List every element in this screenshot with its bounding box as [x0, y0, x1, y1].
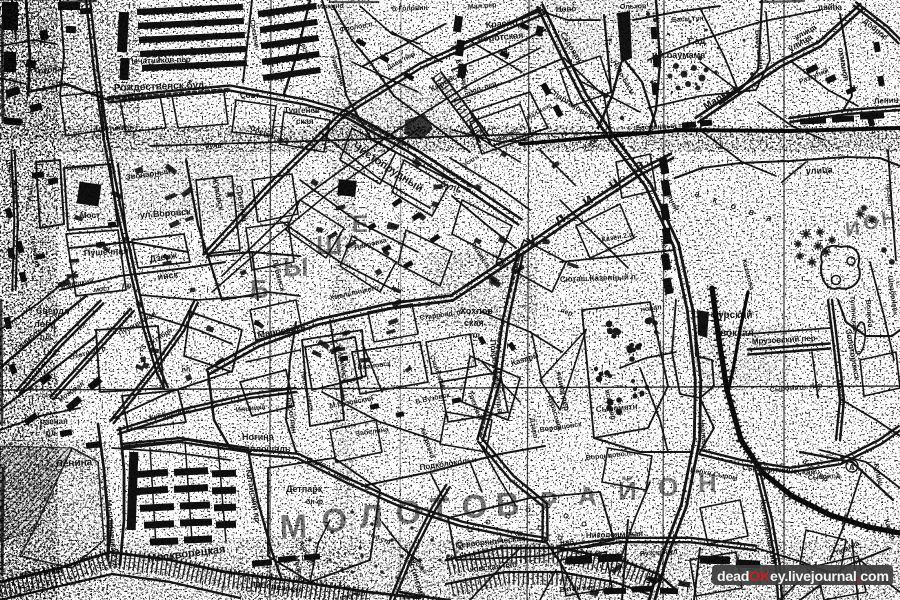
svg-text:deadOKey.livejournal,com: deadOKey.livejournal,com — [717, 569, 889, 585]
